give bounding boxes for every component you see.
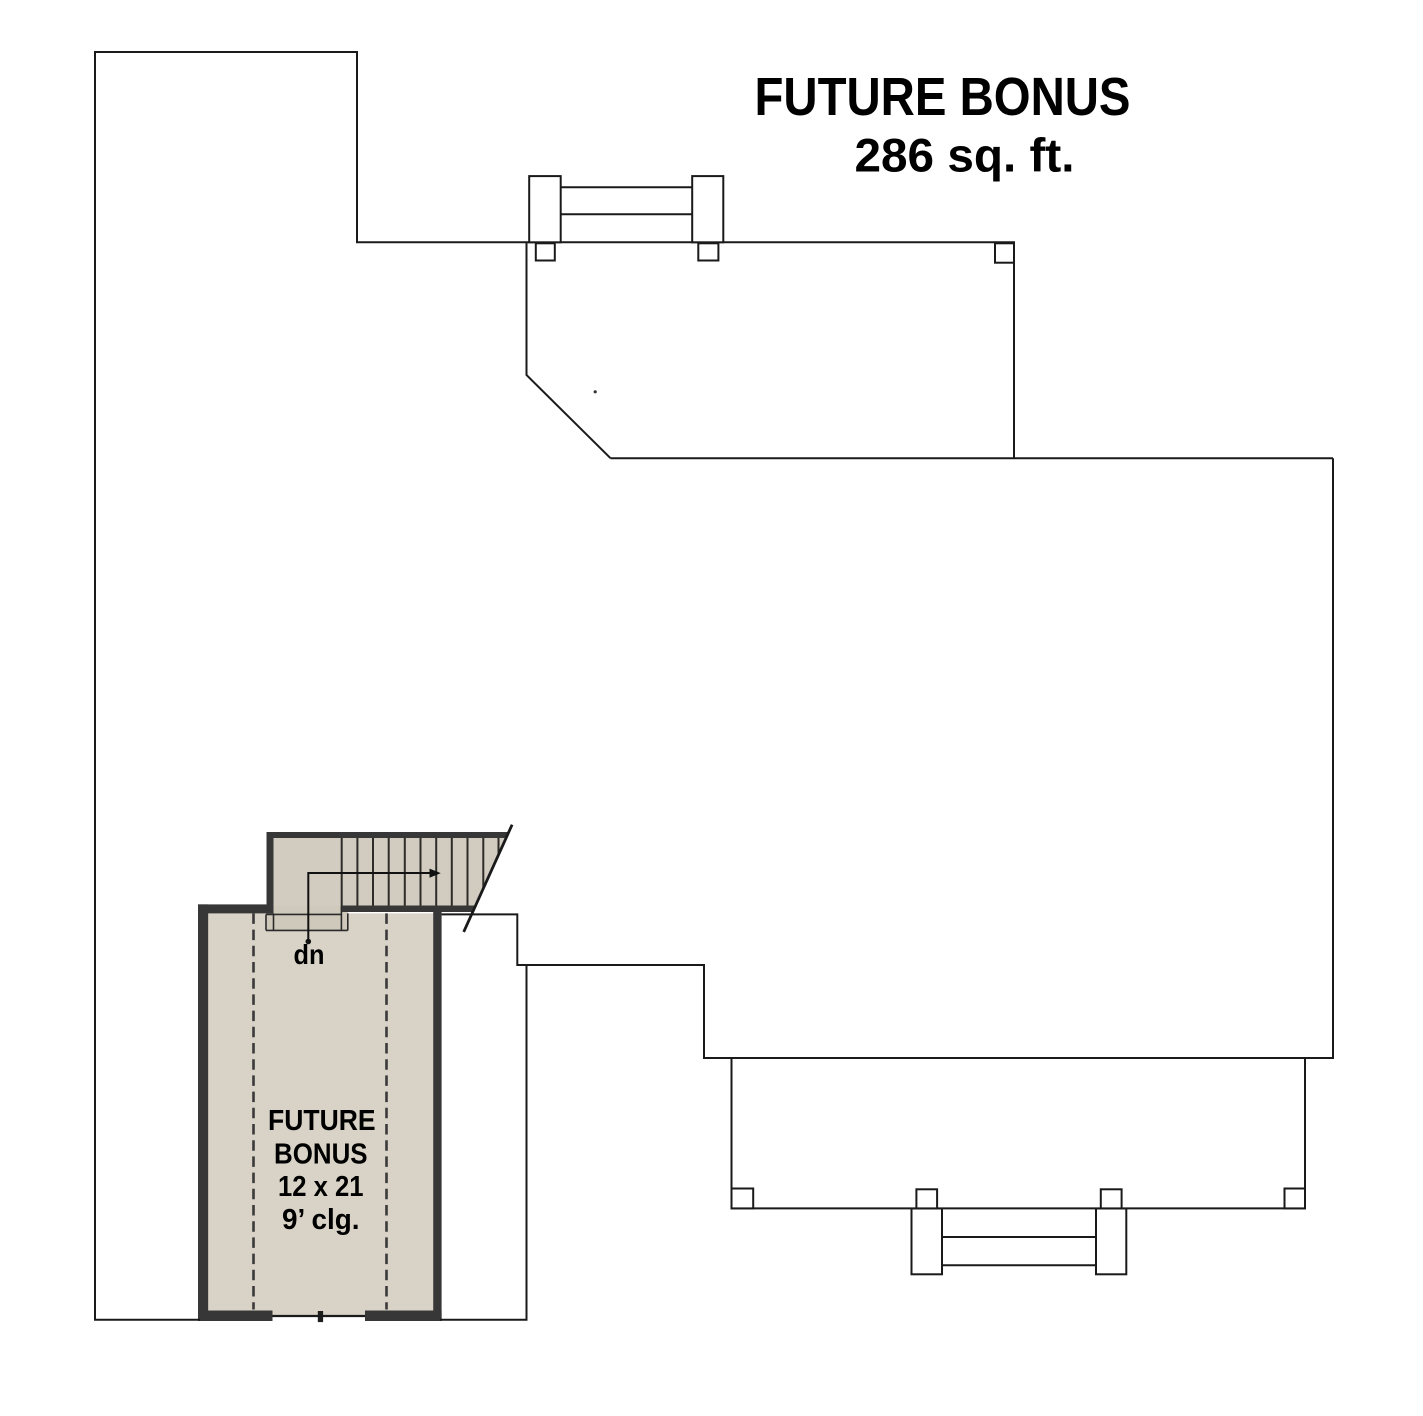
svg-text:FUTURE BONUS: FUTURE BONUS — [755, 68, 1131, 127]
svg-text:9’ clg.: 9’ clg. — [282, 1204, 360, 1236]
svg-text:dn: dn — [294, 939, 325, 970]
svg-text:BONUS: BONUS — [274, 1139, 368, 1171]
svg-text:12 x 21: 12 x 21 — [278, 1171, 364, 1203]
svg-text:286 sq. ft.: 286 sq. ft. — [855, 129, 1075, 182]
svg-text:FUTURE: FUTURE — [268, 1105, 376, 1137]
